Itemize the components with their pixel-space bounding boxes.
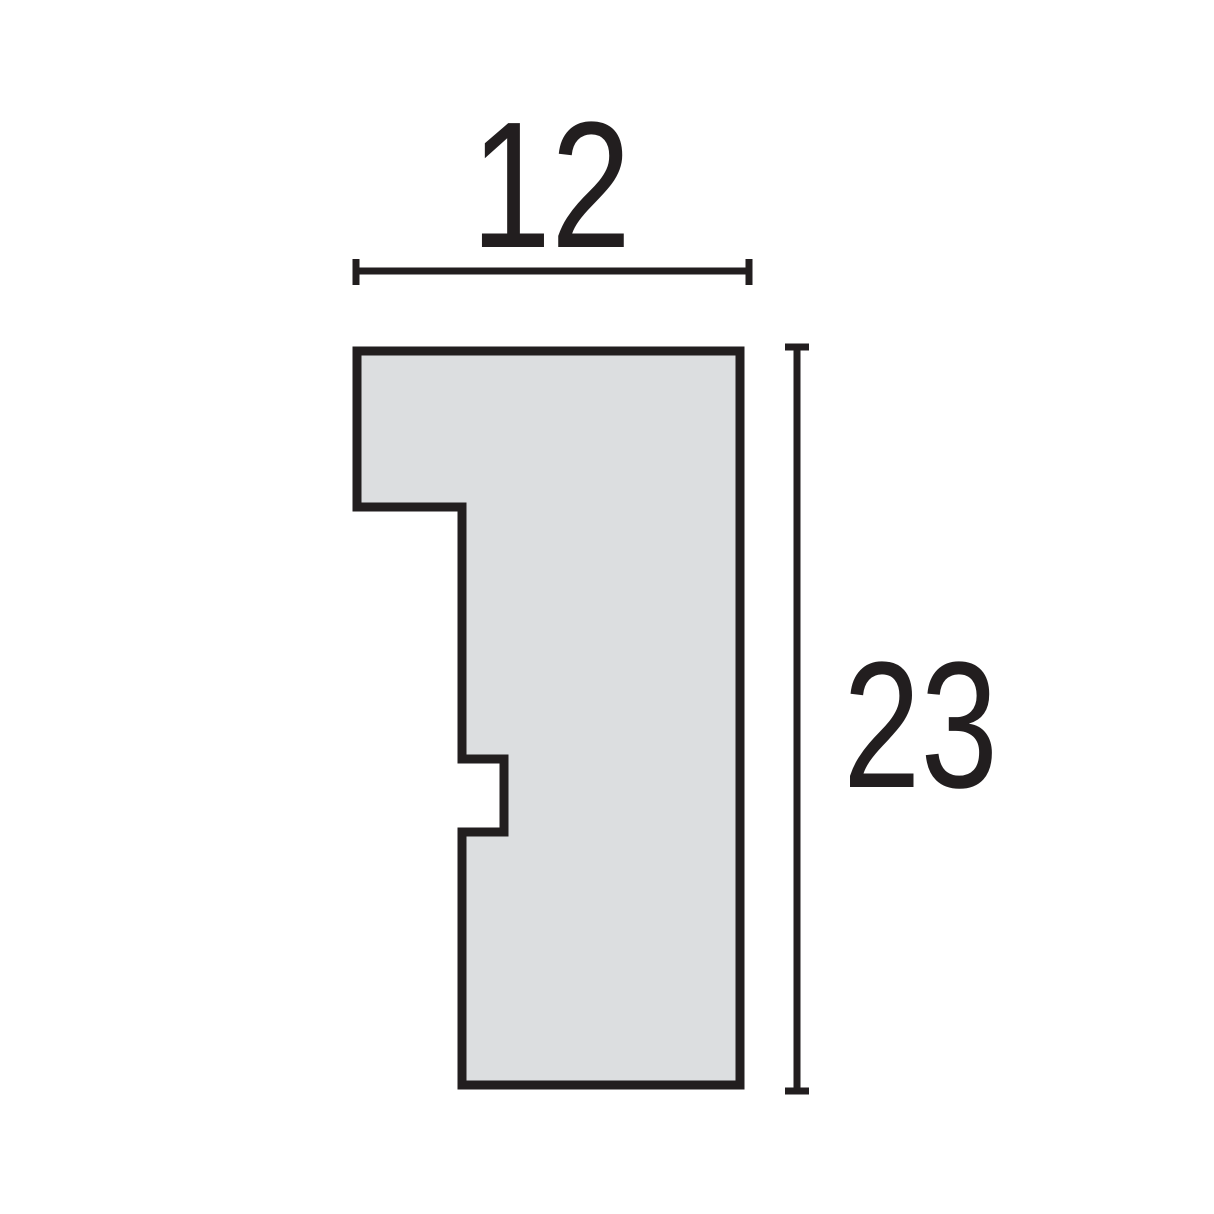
profile-shape xyxy=(357,351,740,1085)
width-dimension: 12 xyxy=(356,85,749,286)
diagram-canvas: 12 23 xyxy=(0,0,1214,1214)
height-dimension-label: 23 xyxy=(843,625,998,826)
height-dimension: 23 xyxy=(785,347,998,1091)
width-dimension-label: 12 xyxy=(471,85,631,286)
profile-diagram: 12 23 xyxy=(0,0,1214,1214)
